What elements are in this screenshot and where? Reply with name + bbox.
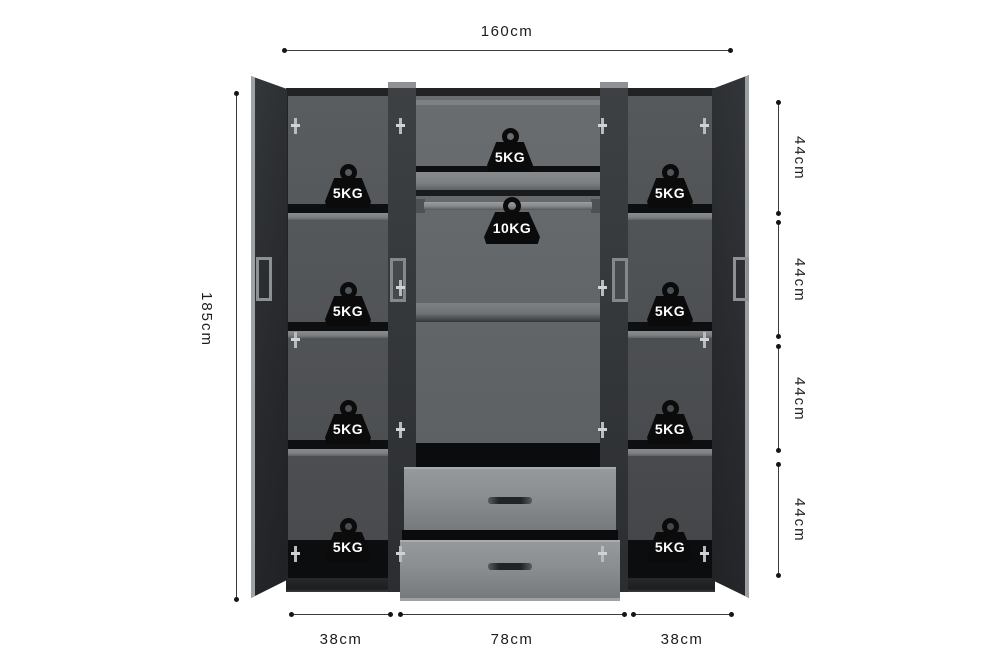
mid-right-door-recess-handle	[612, 258, 628, 302]
support-rail	[416, 303, 600, 322]
drawer-top-handle	[488, 497, 532, 504]
weight-label: 5KG	[333, 185, 363, 201]
weight-badge: 5KG	[647, 518, 693, 562]
weight-badge: 5KG	[487, 128, 533, 172]
weight-badge: 5KG	[325, 518, 371, 562]
weight-badge: 5KG	[325, 400, 371, 444]
mid-left-door-recess-handle	[390, 258, 406, 302]
shelf-edge	[288, 331, 388, 338]
right-door-edge	[745, 75, 749, 603]
hinge-icon	[703, 118, 706, 134]
shelf-edge	[628, 213, 712, 220]
shelf-edge	[628, 449, 712, 456]
hinge-icon	[601, 422, 604, 438]
left-door-edge	[251, 75, 255, 603]
shelf-shadow	[416, 190, 600, 196]
weight-label: 5KG	[655, 421, 685, 437]
top-shelf	[416, 172, 600, 190]
door-top-edge	[388, 82, 416, 88]
weight-label: 5KG	[655, 303, 685, 319]
hinge-icon	[703, 546, 706, 562]
top-panel-edge	[416, 100, 600, 105]
hinge-icon	[399, 422, 402, 438]
hinge-icon	[399, 280, 402, 296]
weight-badge: 5KG	[325, 282, 371, 326]
rod-bracket	[591, 199, 600, 213]
weight-label: 5KG	[655, 539, 685, 555]
weight-badge-rod: 10KG	[484, 197, 540, 244]
hinge-icon	[601, 118, 604, 134]
shelf-edge	[288, 213, 388, 220]
door-top-edge	[600, 82, 628, 88]
weight-label: 5KG	[655, 185, 685, 201]
weight-label: 10KG	[493, 220, 532, 236]
hinge-icon	[294, 332, 297, 348]
weight-badge: 5KG	[647, 282, 693, 326]
left-door-open	[251, 75, 287, 603]
drawer-bottom	[400, 540, 620, 601]
weight-badge: 5KG	[647, 400, 693, 444]
hinge-icon	[601, 546, 604, 562]
open-cavity	[416, 443, 600, 468]
hinge-icon	[399, 118, 402, 134]
wardrobe-illustration: 5KG 5KG 5KG 5KG 5KG 10KG 5KG	[0, 0, 1000, 667]
weight-label: 5KG	[333, 421, 363, 437]
hinge-icon	[294, 118, 297, 134]
hinge-icon	[399, 546, 402, 562]
right-door-open	[712, 75, 749, 603]
shelf-edge	[288, 449, 388, 456]
right-door-handle	[733, 257, 749, 301]
weight-badge: 5KG	[325, 164, 371, 208]
drawer-gap	[402, 530, 618, 540]
hinge-icon	[703, 332, 706, 348]
weight-label: 5KG	[333, 303, 363, 319]
left-door-handle	[256, 257, 272, 301]
shelf-edge	[628, 331, 712, 338]
weight-label: 5KG	[495, 149, 525, 165]
hinge-icon	[294, 546, 297, 562]
drawer-bottom-handle	[488, 563, 532, 570]
weight-label: 5KG	[333, 539, 363, 555]
product-dimension-diagram: 160cm 185cm 44cm 44cm 44cm 44cm 38cm 78c…	[0, 0, 1000, 667]
weight-badge: 5KG	[647, 164, 693, 208]
hinge-icon	[601, 280, 604, 296]
